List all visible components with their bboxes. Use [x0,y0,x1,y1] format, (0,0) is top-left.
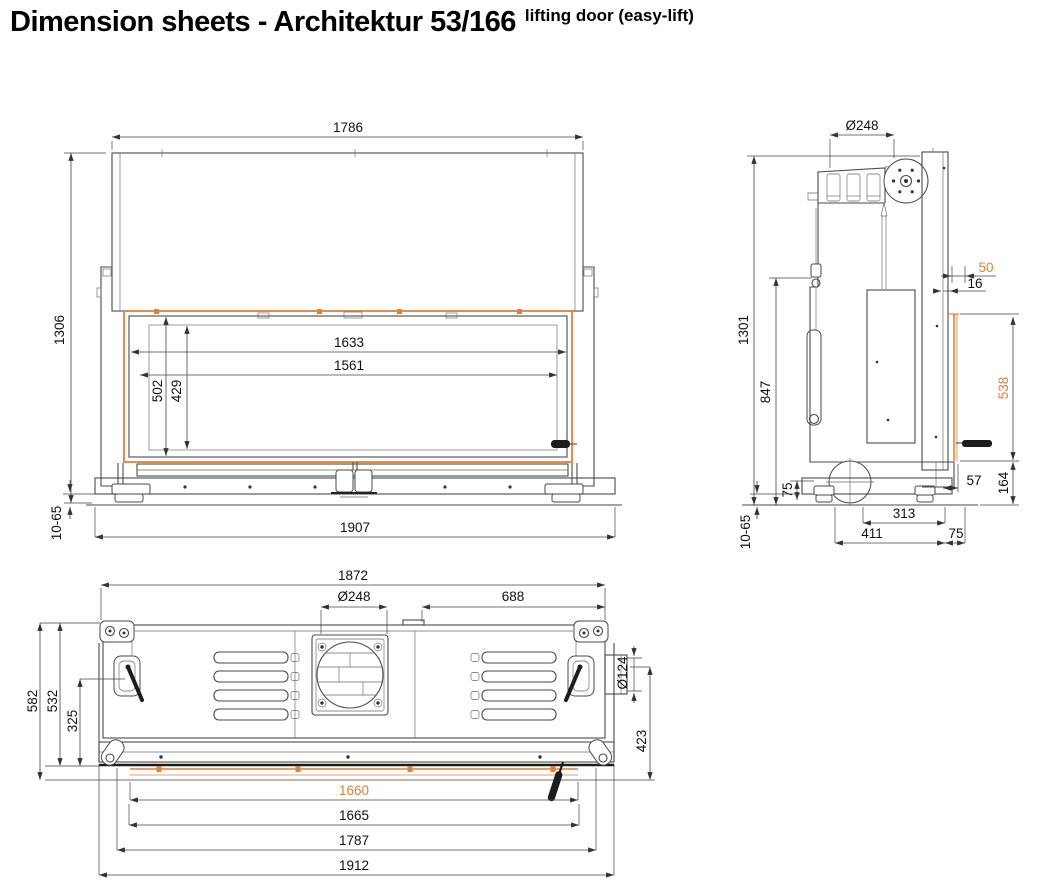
dimension-drawing: 1786 1306 1633 1561 502 429 1907 10-65 [0,0,1049,891]
dim-front-glass-width: 1561 [334,358,364,373]
dim-side-base-depth: 411 [861,526,883,541]
side-handle-icon [962,440,992,447]
dim-top-front-depth: 423 [634,730,649,753]
page-title: Dimension sheets - Architektur 53/166lif… [10,6,694,39]
front-view: 1786 1306 1633 1561 502 429 1907 10-65 [49,120,622,540]
dim-top-body-depth: 532 [45,690,60,713]
vent-slots-left [214,652,299,720]
dim-side-body-height: 847 [758,381,773,404]
vent-slots-right [471,652,556,720]
dim-front-overall-height: 1306 [52,315,67,345]
dim-top-front-width: 1787 [339,833,369,848]
dim-side-foot-height: 75 [780,482,795,497]
flue-opening-circle [317,642,383,708]
dim-side-wall-offset: 50 [978,260,993,275]
dim-side-frame-depth: 57 [966,473,981,488]
dim-side-front-offset: 75 [948,526,963,541]
dim-side-floor-clearance: 10-65 [738,515,753,550]
dim-top-flue-to-side: 688 [502,589,525,604]
dim-top-overall-depth: 582 [25,690,40,713]
dim-top-opening-width: 1665 [339,808,369,823]
dim-top-side-outlet-diameter: Ø124 [615,656,630,690]
dim-front-base-width: 1907 [340,520,370,535]
dim-side-air-inlet-offset: 313 [893,506,916,521]
dim-front-overall-width: 1786 [333,120,363,135]
dim-front-glass-height: 429 [169,380,184,403]
door-frame-outline [124,311,572,462]
dim-top-base-width: 1912 [339,858,369,873]
page-title-text: Dimension sheets - Architektur 53/166 [10,6,516,38]
dim-side-sill-height: 164 [996,471,1011,494]
dim-top-inner-depth: 325 [65,710,80,733]
dim-side-overall-height: 1301 [736,315,751,345]
page-title-superscript: lifting door (easy-lift) [525,6,694,25]
dimension-sheet-page: Dimension sheets - Architektur 53/166lif… [0,0,1049,891]
handle-tool-icon [547,761,567,802]
dim-front-floor-clearance: 10-65 [49,506,64,541]
dim-side-glass-height: 538 [996,377,1011,400]
door-handle-icon [551,440,570,448]
dim-side-frame-offset: 16 [967,276,982,291]
dim-top-glass-width: 1660 [339,783,369,798]
dim-side-flue-diameter: Ø248 [845,118,878,133]
dim-top-flue-diameter: Ø248 [337,589,370,604]
dim-front-door-frame-height: 502 [150,380,165,403]
side-view: Ø248 1301 847 75 10-65 50 16 538 [736,118,1019,549]
dim-top-overall-width: 1872 [338,568,368,583]
dim-front-door-frame-width: 1633 [334,335,364,350]
top-view: 1872 Ø248 688 582 532 325 Ø124 423 1660 [25,568,655,875]
